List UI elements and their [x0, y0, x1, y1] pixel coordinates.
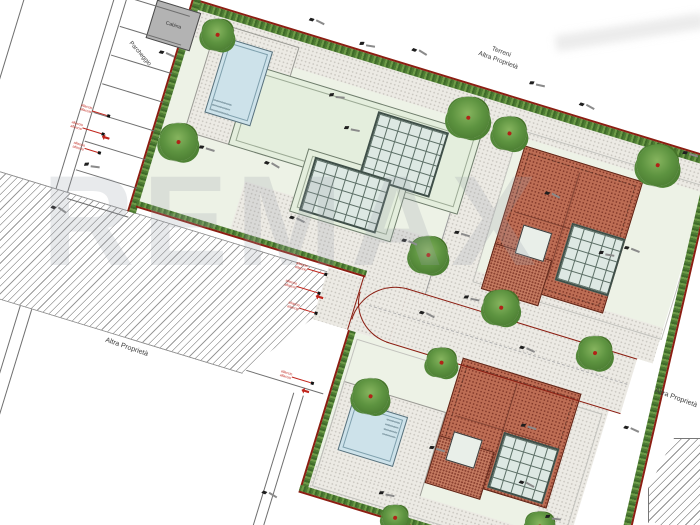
utility-point-marker — [310, 382, 314, 386]
survey-marker — [529, 80, 535, 85]
leader-line — [291, 377, 310, 384]
terreni-label: Terreni Altra Proprietà — [453, 33, 545, 81]
utility-label: allaccio allaccio — [79, 104, 92, 115]
parking-stall-line — [76, 169, 137, 189]
survey-marker-label — [536, 83, 545, 87]
site-plan-canvas: Cabina Parcheggio Terreni Altra Propriet… — [0, 0, 700, 525]
survey-marker — [359, 41, 365, 46]
survey-marker — [579, 101, 585, 107]
survey-marker-label — [419, 49, 428, 55]
access-road-line — [231, 396, 304, 525]
leader-line — [84, 148, 98, 153]
survey-marker — [623, 425, 629, 431]
survey-marker-label — [316, 19, 325, 25]
survey-marker-label — [630, 427, 639, 433]
survey-marker-label — [586, 104, 595, 110]
leader-line — [307, 268, 325, 274]
utility-label: allaccio allaccio — [72, 142, 85, 153]
leader-line — [299, 308, 315, 314]
parking-stall-line — [102, 83, 163, 103]
survey-marker-label — [366, 44, 375, 47]
parking-stall-line — [67, 198, 128, 218]
survey-marker — [411, 47, 417, 53]
leader-line — [91, 111, 107, 117]
utility-label: allaccio allaccio — [70, 121, 83, 132]
utility-label: allaccio allaccio — [279, 370, 292, 381]
survey-marker — [309, 17, 315, 23]
scan-smudge — [555, 12, 700, 51]
